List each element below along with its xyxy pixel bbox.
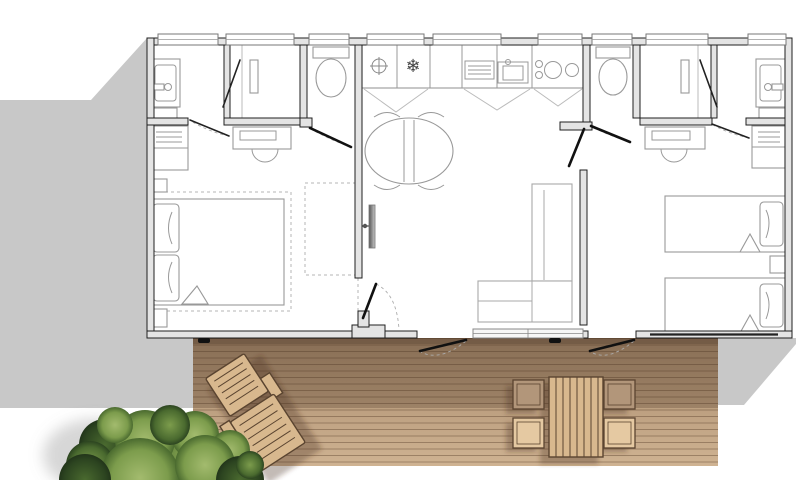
wall-west bbox=[147, 38, 154, 338]
floor-plan-canvas: ❄ bbox=[0, 0, 796, 480]
toilet-left bbox=[313, 47, 349, 97]
pillow bbox=[153, 255, 179, 301]
window bbox=[433, 34, 501, 45]
wall-east bbox=[785, 38, 792, 338]
wall-south-pier bbox=[583, 331, 588, 338]
window bbox=[646, 34, 708, 45]
wall-stub-right bbox=[560, 122, 592, 130]
outdoor-plank-table bbox=[549, 377, 603, 457]
north-windows bbox=[158, 34, 786, 45]
partition-right bbox=[580, 170, 587, 325]
outdoor-chair-bottom-left bbox=[513, 418, 544, 448]
window bbox=[158, 34, 218, 45]
closet-shelf-right bbox=[681, 60, 689, 93]
wall-wc-right-west bbox=[583, 45, 590, 122]
floor-plan-drawing: ❄ bbox=[0, 0, 796, 480]
wall-wc-right-east bbox=[633, 45, 640, 118]
door-handle-mark bbox=[549, 338, 561, 343]
wall-south-2 bbox=[385, 331, 417, 338]
window bbox=[309, 34, 349, 45]
pillow bbox=[760, 284, 783, 327]
outdoor-chair-top-right bbox=[604, 380, 635, 409]
wall-bath-right-south bbox=[746, 118, 785, 125]
window bbox=[592, 34, 632, 45]
outdoor-chair-bottom-right bbox=[604, 418, 635, 448]
wall-dressing-left bbox=[224, 45, 230, 118]
window bbox=[748, 34, 786, 45]
window bbox=[367, 34, 424, 45]
pillow bbox=[760, 202, 783, 246]
wall-bath-right-west bbox=[711, 45, 717, 118]
window bbox=[538, 34, 582, 45]
partition-left bbox=[355, 45, 362, 278]
wall-stub-left bbox=[300, 118, 312, 127]
door-handle-mark bbox=[198, 338, 210, 343]
nightstand bbox=[770, 256, 787, 273]
closet-shelf-left bbox=[250, 60, 258, 93]
washbasin-right bbox=[756, 59, 785, 119]
freezer-snowflake-icon: ❄ bbox=[405, 56, 420, 77]
right-cast-shadow bbox=[718, 338, 796, 405]
pillow bbox=[153, 204, 179, 252]
dresser-left bbox=[149, 126, 188, 170]
bath-cabinet-right bbox=[759, 108, 785, 119]
deck bbox=[193, 338, 718, 480]
wall-dressing-left-south bbox=[224, 118, 307, 125]
wall-bath-left bbox=[147, 118, 188, 125]
dresser-right bbox=[752, 126, 785, 168]
wall-dressing-right-south bbox=[640, 118, 712, 125]
bay-window bbox=[473, 329, 583, 338]
wall-wc-left bbox=[300, 45, 307, 118]
house: ❄ bbox=[147, 34, 792, 355]
window bbox=[226, 34, 294, 45]
outdoor-chair-top-left bbox=[513, 380, 544, 409]
wall-south-1 bbox=[147, 331, 352, 338]
